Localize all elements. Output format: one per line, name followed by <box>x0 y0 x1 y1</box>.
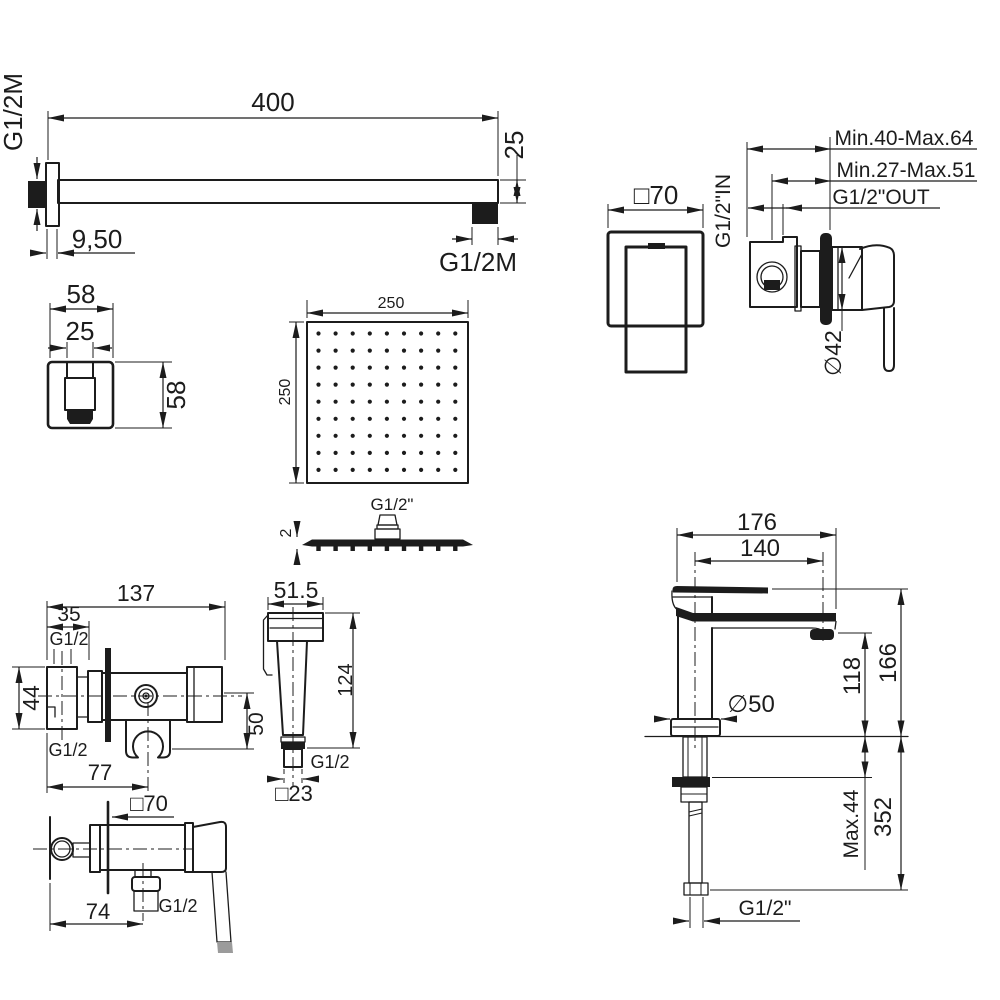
shower-head-nozzles <box>316 331 457 472</box>
mixer-valve-body <box>750 237 797 307</box>
label-exposed-thread: G1/2 <box>158 896 197 916</box>
label-sprayer-thread: G1/2 <box>310 752 349 772</box>
dim-mixer-plate: □70 <box>634 180 679 210</box>
label-mixer-outlet-thread: G1/2"OUT <box>832 186 929 209</box>
label-basin-thread: G1/2" <box>739 897 792 920</box>
dim-arm-flange-offset: 9,50 <box>72 224 123 254</box>
technical-drawing-canvas: 400 25 G1/2M 9,50 G1/2M 58 <box>0 0 1000 1000</box>
shower-arm-body <box>58 180 498 203</box>
dim-head-width: 250 <box>378 295 405 312</box>
label-arm-outlet-thread: G1/2M <box>439 247 517 277</box>
dim-sprayer-head-width: 51.5 <box>274 577 319 603</box>
dim-basin-base-diameter: ∅50 <box>727 691 775 718</box>
dim-mixer-depth-outer: Min.40-Max.64 <box>835 127 974 150</box>
basin-mixer-drawing: 176 140 166 118 ∅50 Max.44 352 G1/2" <box>645 509 908 928</box>
dim-basin-spout-height: 118 <box>839 657 866 695</box>
dim-basin-total-width: 176 <box>737 509 777 536</box>
shower-arm-drawing: 400 25 G1/2M 9,50 G1/2M <box>0 73 529 277</box>
dim-valve-height: 44 <box>18 685 44 711</box>
dim-exposed-spacing: 74 <box>86 899 110 924</box>
dim-basin-under-height: 352 <box>870 797 897 837</box>
basin-mixer-lever <box>673 586 769 594</box>
exposed-mixer-lever-tip <box>217 942 233 953</box>
dim-head-depth: 250 <box>277 379 294 406</box>
dim-valve-base: 77 <box>88 760 112 785</box>
mixer-wall-trim <box>820 233 832 325</box>
dim-escutcheon-inner: 25 <box>66 316 95 346</box>
dim-escutcheon-width: 58 <box>67 279 96 309</box>
sprayer-body <box>277 641 307 735</box>
basin-mixer-aerator <box>810 629 834 640</box>
basin-mixer-nut <box>672 777 710 787</box>
label-valve-top-thread: G1/2 <box>49 629 88 649</box>
label-head-thread: G1/2" <box>371 495 414 514</box>
shower-arm-outlet <box>472 204 498 224</box>
label-arm-wall-thread: G1/2M <box>0 73 28 151</box>
shower-arm-wall-nipple <box>28 181 46 208</box>
dim-arm-height: 25 <box>499 131 529 160</box>
mixer-handle-side <box>860 245 894 310</box>
dim-basin-height: 166 <box>875 643 902 683</box>
dim-basin-spout-reach: 140 <box>740 535 780 562</box>
dim-arm-length: 400 <box>251 87 294 117</box>
exposed-mixer-drawing: □70 G1/2 74 <box>33 791 233 953</box>
dim-valve-total: 137 <box>117 580 155 606</box>
shower-head-drawing: 250 250 G1/2" 2 <box>277 295 473 564</box>
dim-sprayer-square: □23 <box>275 781 313 806</box>
shower-head-plate-side <box>302 540 473 547</box>
exposed-mixer-outlet <box>132 877 160 891</box>
dim-valve-holder-drop: 50 <box>245 712 268 735</box>
dim-basin-deck-max: Max.44 <box>840 789 863 858</box>
sprayer-head <box>268 613 323 641</box>
valve-wall-plate <box>105 648 111 742</box>
dim-escutcheon-height: 58 <box>161 381 191 410</box>
label-mixer-inlet-thread: G1/2"IN <box>712 174 735 248</box>
mixer-handle-front <box>626 247 686 372</box>
dim-exposed-plate: □70 <box>130 791 168 816</box>
shower-head-nozzle-nubs <box>316 547 457 552</box>
label-valve-bottom-thread: G1/2 <box>48 740 87 760</box>
angle-valve-drawing: 137 35 G1/2 44 G1/2 77 <box>12 580 268 793</box>
dim-valve-inlet: 35 <box>57 603 80 626</box>
exposed-mixer-handle <box>193 822 226 872</box>
basin-mixer-spout <box>693 613 836 622</box>
wall-escutcheon-drawing: 58 25 58 <box>48 279 191 428</box>
concealed-mixer-drawing: □70 G1/2"IN Min.40-Max.64 Min.27-Max.51 … <box>608 127 977 376</box>
dim-head-thickness: 2 <box>278 528 295 537</box>
dim-mixer-depth-inner: Min.27-Max.51 <box>837 159 976 182</box>
dim-sprayer-length: 124 <box>335 663 357 696</box>
hand-sprayer-drawing: 51.5 124 G1/2 □23 <box>264 577 361 806</box>
dim-mixer-trim-diameter: ∅42 <box>820 330 846 376</box>
